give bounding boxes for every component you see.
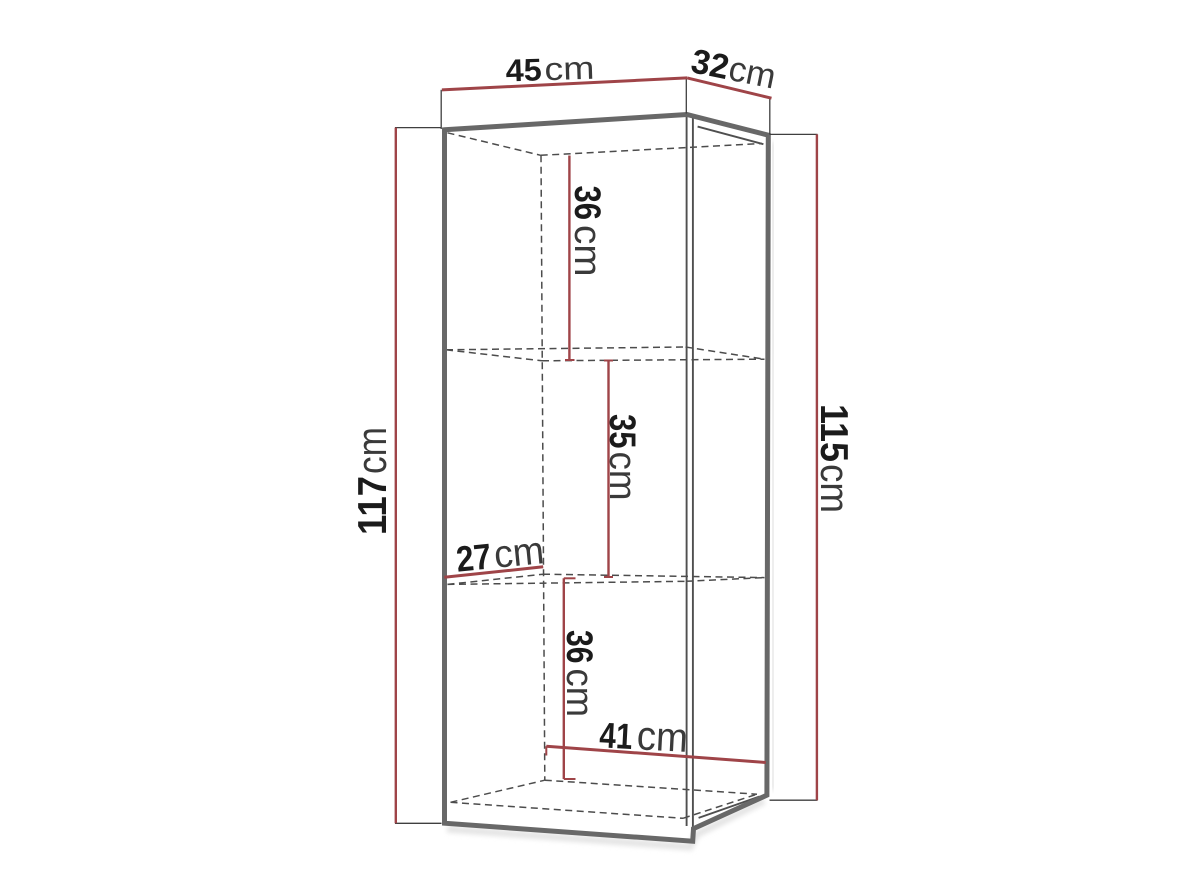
svg-text:35: 35 <box>602 414 643 449</box>
svg-text:36: 36 <box>559 630 600 664</box>
svg-text:36: 36 <box>567 186 608 221</box>
svg-text:41: 41 <box>598 714 633 757</box>
svg-text:cm: cm <box>636 712 689 761</box>
svg-text:115: 115 <box>812 404 855 462</box>
svg-text:117: 117 <box>349 476 395 535</box>
svg-text:27: 27 <box>454 535 493 579</box>
svg-text:32: 32 <box>688 42 732 87</box>
svg-text:cm: cm <box>558 669 600 718</box>
svg-text:cm: cm <box>812 464 856 513</box>
svg-text:cm: cm <box>566 225 608 277</box>
svg-text:cm: cm <box>544 50 595 88</box>
svg-text:cm: cm <box>348 427 395 474</box>
svg-text:45: 45 <box>505 51 542 88</box>
svg-text:cm: cm <box>601 452 643 501</box>
svg-text:cm: cm <box>492 529 546 577</box>
